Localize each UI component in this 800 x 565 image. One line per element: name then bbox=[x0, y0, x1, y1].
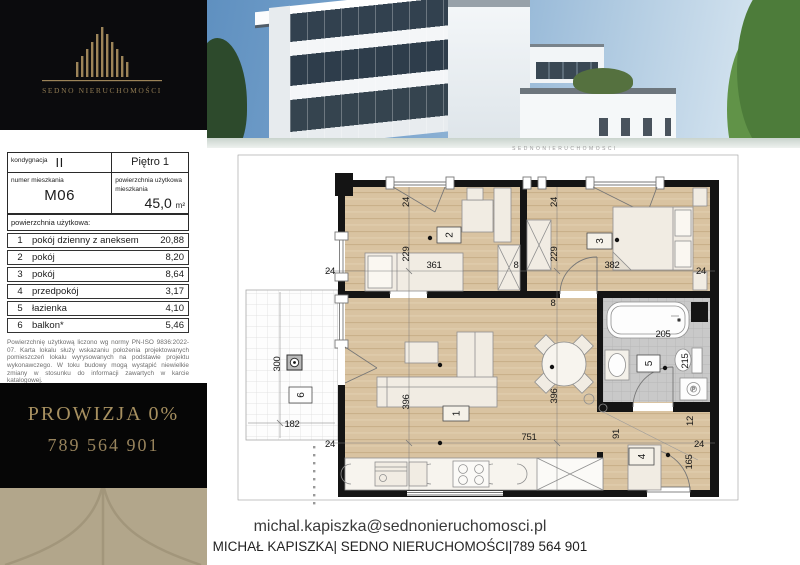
area-label: powierzchnia użytkowa mieszkania bbox=[115, 177, 182, 193]
room-no: 2 bbox=[8, 252, 32, 263]
room-number-5: 5 bbox=[644, 360, 655, 366]
spec-header-block: kondygnacja II Piętro 1 numer mieszkania… bbox=[7, 152, 189, 231]
brand-name: SEDNO NIERUCHOMOŚCI bbox=[42, 85, 162, 95]
nightstand bbox=[693, 188, 707, 206]
unit-value: M06 bbox=[11, 187, 108, 204]
room-name: łazienka bbox=[32, 303, 148, 314]
building-side-wall bbox=[448, 0, 530, 148]
dim-361: 361 bbox=[427, 260, 442, 271]
balcony bbox=[246, 290, 338, 440]
dim-205-bathtub: 205 bbox=[656, 329, 671, 340]
dim-24-bottom-left: 24 bbox=[325, 439, 335, 450]
spec-table: kondygnacja II Piętro 1 numer mieszkania… bbox=[7, 152, 189, 403]
building-side-roof bbox=[448, 0, 530, 7]
oven bbox=[375, 462, 407, 486]
room-number-2: 2 bbox=[445, 232, 456, 238]
dim-396-living: 396 bbox=[401, 395, 412, 410]
contact-line: MICHAŁ KAPISZKA| SEDNO NIERUCHOMOŚCI|789… bbox=[100, 539, 700, 554]
room-name: przedpokój bbox=[32, 286, 148, 297]
dim-8-low: 8 bbox=[551, 298, 556, 309]
floor-name-cell: Piętro 1 bbox=[112, 153, 188, 172]
brand-logo-box: SEDNO NIERUCHOMOŚCI bbox=[0, 0, 207, 130]
floor-label: kondygnacja bbox=[11, 157, 48, 164]
sink bbox=[605, 350, 629, 380]
room-no: 6 bbox=[8, 320, 32, 331]
cooktop bbox=[453, 461, 489, 487]
room-number-4: 4 bbox=[637, 453, 648, 459]
room-row-1: 1 pokój dzienny z aneksem 20,88 bbox=[7, 233, 189, 248]
room-row-4: 4 przedpokój 3,17 bbox=[7, 284, 189, 299]
floor-plan: SEDNONIERUCHOMOSCI bbox=[235, 140, 740, 512]
room-no: 5 bbox=[8, 303, 32, 314]
room-number-1: 1 bbox=[452, 410, 463, 416]
room-name: pokój dzienny z aneksem bbox=[32, 235, 148, 246]
dim-396-dining: 396 bbox=[549, 389, 560, 404]
building-annex-windows bbox=[599, 118, 671, 136]
room-name: balkon* bbox=[32, 320, 148, 331]
tree-middle bbox=[573, 68, 633, 94]
room-number-6: 6 bbox=[296, 392, 307, 398]
room-name: pokój bbox=[32, 252, 148, 263]
dim-91-hall: 91 bbox=[611, 429, 622, 439]
desk bbox=[462, 200, 493, 232]
area-unit: m² bbox=[176, 201, 185, 210]
disclaimer-text-1: Powierzchnię użytkową liczono wg normy P… bbox=[7, 339, 189, 385]
room-area: 5,46 bbox=[148, 320, 188, 331]
unit-label: numer mieszkania bbox=[11, 177, 64, 184]
tree-right bbox=[737, 0, 800, 148]
left-panel: SEDNO NIERUCHOMOŚCI kondygnacja II Piętr… bbox=[0, 0, 207, 565]
building-glass-facade bbox=[290, 0, 448, 148]
washing-machine: P bbox=[680, 378, 707, 400]
projection-dashes bbox=[313, 446, 315, 504]
room-area: 3,17 bbox=[148, 286, 188, 297]
dim-300-balcony: 300 bbox=[272, 357, 283, 372]
shelf bbox=[467, 188, 483, 200]
room-row-3: 3 pokój 8,64 bbox=[7, 267, 189, 282]
dim-182-balcony: 182 bbox=[285, 419, 300, 430]
building-pilaster bbox=[269, 6, 290, 148]
dim-229-room2: 229 bbox=[401, 247, 412, 262]
floor-cell: kondygnacja II bbox=[8, 153, 112, 172]
brand-logo-icon: SEDNO NIERUCHOMOŚCI bbox=[0, 0, 207, 130]
area-cell: powierzchnia użytkowa mieszkania 45,0 m² bbox=[112, 173, 188, 213]
closet-x-room3 bbox=[527, 220, 551, 270]
room-number-3: 3 bbox=[595, 238, 606, 244]
dim-24-left: 24 bbox=[325, 266, 335, 277]
unit-row: numer mieszkania M06 powierzchnia użytko… bbox=[8, 173, 188, 214]
dining-set bbox=[535, 335, 594, 394]
dim-24-room3-top: 24 bbox=[549, 197, 560, 207]
floor-row: kondygnacja II Piętro 1 bbox=[8, 153, 188, 173]
kitchen-counter bbox=[341, 458, 603, 490]
tree-left bbox=[207, 38, 247, 148]
washer-label: P bbox=[692, 387, 696, 393]
room-row-5: 5 łazienka 4,10 bbox=[7, 301, 189, 316]
bed-single bbox=[365, 253, 463, 291]
contact-email: michal.kapiszka@sednonieruchomosci.pl bbox=[100, 518, 700, 536]
dim-24-hall: 24 bbox=[694, 439, 704, 450]
room-area: 4,10 bbox=[148, 303, 188, 314]
dim-12-hall: 12 bbox=[685, 416, 696, 426]
rooms-header: powierzchnia użytkowa: bbox=[8, 214, 188, 230]
room-row-2: 2 pokój 8,20 bbox=[7, 250, 189, 265]
plan-watermark: SEDNONIERUCHOMOSCI bbox=[512, 146, 618, 152]
bathtub bbox=[607, 302, 689, 338]
area-value: 45,0 bbox=[145, 195, 172, 211]
dim-165-hall: 165 bbox=[684, 455, 695, 470]
room-no: 3 bbox=[8, 269, 32, 280]
dim-8-mid: 8 bbox=[514, 260, 519, 271]
area-value-wrap: 45,0 m² bbox=[115, 195, 185, 211]
room-area: 8,20 bbox=[148, 252, 188, 263]
dim-229-room3: 229 bbox=[549, 247, 560, 262]
room-no: 4 bbox=[8, 286, 32, 297]
promo-commission: PROWIZJA 0% bbox=[0, 403, 207, 426]
dim-751: 751 bbox=[522, 432, 537, 443]
contact-block: michal.kapiszka@sednonieruchomosci.pl MI… bbox=[100, 518, 700, 554]
dim-24-right: 24 bbox=[696, 266, 706, 277]
dim-24-room2-top: 24 bbox=[401, 197, 412, 207]
room-area: 20,88 bbox=[148, 235, 188, 246]
promo-box: PROWIZJA 0% 789 564 901 bbox=[0, 383, 207, 488]
building-render bbox=[207, 0, 800, 148]
dim-382: 382 bbox=[605, 260, 620, 271]
room-no: 1 bbox=[8, 235, 32, 246]
bed-double bbox=[613, 207, 693, 270]
floor-name: Piętro 1 bbox=[115, 156, 185, 168]
fridge-x bbox=[537, 458, 603, 490]
dim-215-toilet: 215 bbox=[680, 354, 691, 369]
promo-phone: 789 564 901 bbox=[0, 435, 207, 456]
unit-cell: numer mieszkania M06 bbox=[8, 173, 112, 213]
wardrobe-room2 bbox=[494, 188, 511, 242]
room-name: pokój bbox=[32, 269, 148, 280]
coffee-table bbox=[405, 342, 438, 363]
room-area: 8,64 bbox=[148, 269, 188, 280]
room-row-6: 6 balkon* 5,46 bbox=[7, 318, 189, 333]
